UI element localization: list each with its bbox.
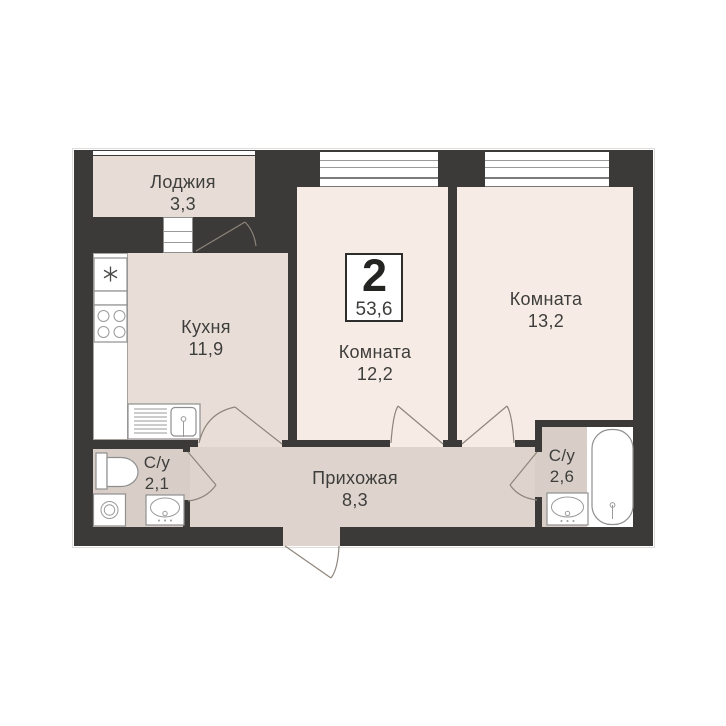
kitchen-drawer xyxy=(94,291,127,305)
kitchen-sink xyxy=(128,404,200,439)
bathroom-1-sink xyxy=(146,495,184,525)
door-swing-bathroom-2 xyxy=(510,452,537,500)
bathtub xyxy=(587,427,633,527)
floor-plan: 2 53,6 Лоджия 3,3 Кухня 11,9 Комната 12,… xyxy=(0,0,726,726)
door-swing-room-2 xyxy=(462,406,514,444)
door-swing-kitchen xyxy=(199,407,282,444)
refrigerator xyxy=(94,258,127,291)
door-swing-entrance xyxy=(285,546,339,578)
bathroom-2-sink xyxy=(547,493,588,525)
door-swing-room-1 xyxy=(391,406,443,444)
stove xyxy=(94,305,127,342)
fixtures-layer xyxy=(0,0,726,726)
door-swing-bathroom-1 xyxy=(188,452,216,501)
washing-machine xyxy=(94,494,126,526)
toilet xyxy=(96,453,138,489)
door-swing-balcony xyxy=(196,222,256,251)
